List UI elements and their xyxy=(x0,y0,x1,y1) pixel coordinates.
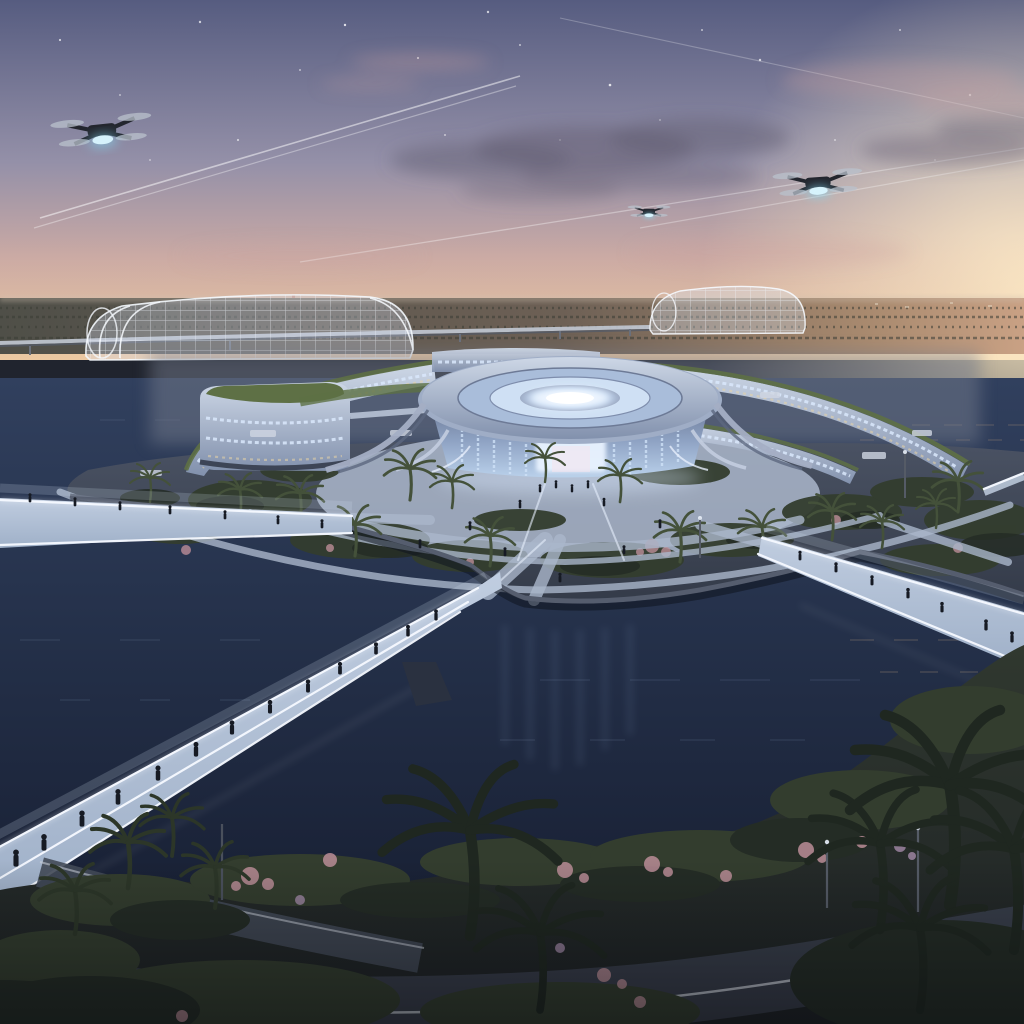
person xyxy=(73,497,76,506)
person xyxy=(118,501,121,510)
person xyxy=(558,573,561,583)
person xyxy=(223,510,226,519)
person xyxy=(1010,631,1014,642)
person xyxy=(503,547,506,556)
person xyxy=(468,521,471,530)
person xyxy=(115,789,120,805)
person xyxy=(268,700,273,714)
greenhouse-left xyxy=(86,295,413,360)
person xyxy=(834,562,837,572)
person xyxy=(587,480,590,488)
person xyxy=(338,662,342,675)
person xyxy=(306,679,310,692)
person xyxy=(79,810,84,826)
person xyxy=(374,642,378,654)
greenhouse-right xyxy=(650,286,805,334)
person xyxy=(571,484,574,492)
roof-center-core xyxy=(546,392,594,404)
person xyxy=(798,551,801,561)
bottom-vignette xyxy=(0,860,1024,1024)
person xyxy=(984,619,988,630)
person xyxy=(539,484,542,492)
person xyxy=(658,519,661,528)
person xyxy=(28,493,31,502)
person xyxy=(230,720,235,734)
person xyxy=(906,588,910,599)
person xyxy=(940,602,944,613)
person xyxy=(276,515,279,524)
person xyxy=(519,500,522,509)
horizon-line-haze xyxy=(0,296,1024,302)
person xyxy=(434,609,438,620)
person xyxy=(168,505,171,514)
greenhouse-left-lattice xyxy=(86,295,413,360)
rendered-scene xyxy=(0,0,1024,1024)
scene-canvas xyxy=(0,0,1024,1024)
person xyxy=(41,834,47,851)
person xyxy=(622,545,625,554)
greenhouse-right-lattice xyxy=(650,286,805,334)
person xyxy=(555,480,558,488)
person xyxy=(155,765,160,780)
person xyxy=(320,519,323,528)
person xyxy=(870,575,873,585)
person xyxy=(418,539,421,548)
person xyxy=(603,498,606,507)
person xyxy=(406,625,410,637)
person xyxy=(194,742,199,757)
